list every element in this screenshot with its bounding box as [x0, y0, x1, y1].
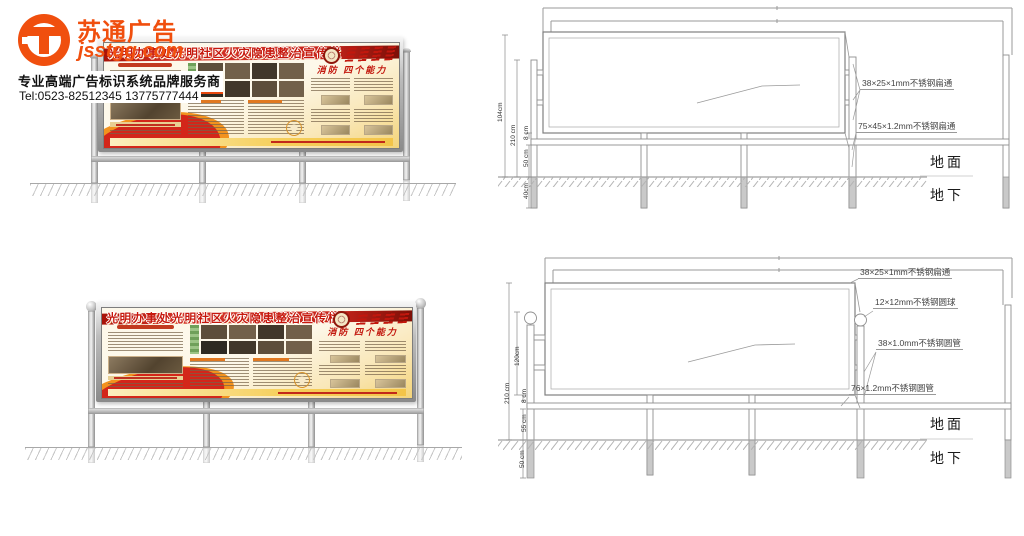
cross-rail-line — [531, 139, 1009, 145]
ground-label: 地面 — [930, 152, 964, 172]
ground-label: 地面 — [930, 414, 964, 434]
callout-leader — [850, 279, 858, 283]
cross-rail — [91, 156, 410, 162]
seal-icon — [333, 311, 350, 328]
design-proof-canvas: 苏通广告 jsstgg.com 专业高端广告标识系统品牌服务商 Tel:0523… — [0, 0, 1024, 536]
stand-leg — [299, 150, 306, 183]
poster-right-column: 消防 四个能力 — [311, 63, 393, 137]
signature-line — [271, 141, 384, 144]
poster-face: 光明办事处光明社区火灾隐患整治宣传栏 — [101, 307, 413, 399]
ability-item — [354, 109, 393, 137]
dim-label: 210 cm — [510, 125, 517, 146]
left-post — [527, 325, 534, 440]
bottom-yellow-strip — [108, 389, 406, 396]
photo-caption — [108, 376, 182, 380]
underground-label: 地下 — [930, 185, 964, 205]
ability-item — [319, 341, 360, 364]
poster-title: 光明办事处光明社区火灾隐患整治宣传栏 — [107, 310, 341, 326]
calligraphy-slogan-icon — [356, 311, 410, 324]
bottom-yellow-strip — [110, 138, 393, 146]
ball-finial — [855, 314, 867, 326]
front-frame-outer — [543, 32, 845, 133]
vertical-green-label — [190, 325, 199, 354]
text-block — [190, 358, 249, 388]
stand-post — [88, 311, 95, 447]
ground-hatch-strip — [498, 177, 927, 187]
far-post — [1005, 305, 1011, 440]
signature-line — [278, 392, 397, 395]
ground-hatch — [25, 447, 462, 460]
poster-middle-column — [190, 325, 312, 388]
ground-hatch-strip — [498, 440, 927, 450]
stand-post — [417, 308, 424, 445]
cross-rail — [88, 408, 424, 414]
dim-label: 120cm — [514, 346, 521, 366]
fire-abilities-title: 消防 四个能力 — [319, 325, 405, 338]
sutong-logo-icon — [16, 12, 72, 68]
ground-hatch — [30, 183, 456, 196]
text-block — [188, 100, 244, 136]
cross-rail-line — [527, 403, 1011, 409]
underground-label: 地下 — [930, 448, 964, 468]
front-frame-outer — [545, 283, 855, 395]
inset-photo — [108, 356, 182, 374]
technical-drawing-bottom — [495, 250, 1024, 536]
text-block — [110, 130, 181, 136]
dim-label: 8 cm — [523, 126, 530, 140]
seal-icon — [323, 47, 340, 64]
dim-label: 210 cm — [504, 383, 511, 404]
calligraphy-slogan-icon — [345, 46, 397, 61]
board-frame: 光明办事处光明社区火灾隐患整治宣传栏 — [96, 302, 416, 402]
ability-item — [311, 78, 350, 106]
material-callout: 38×25×1mm不锈钢扁通 — [858, 268, 952, 279]
material-callout: 38×1.0mm不锈钢圆管 — [876, 339, 963, 350]
fire-abilities-title: 消防 四个能力 — [311, 63, 393, 76]
poster-right-column: 消防 四个能力 — [319, 325, 405, 388]
stand-leg — [199, 150, 206, 183]
material-callout: 12×12mm不锈钢圆球 — [873, 298, 958, 309]
section-header-pill — [118, 63, 172, 67]
photo-grid — [201, 325, 312, 354]
ability-item — [319, 365, 360, 388]
material-callout: 75×45×1.2mm不锈钢扁通 — [856, 122, 957, 133]
dim-line-height — [514, 60, 520, 177]
text-block — [108, 383, 182, 388]
ability-item — [365, 365, 406, 388]
brand-telephone: Tel:0523-82512345 13775777444 — [17, 89, 201, 103]
dim-line-total — [506, 283, 512, 440]
callout-leader — [864, 311, 873, 317]
material-callout: 76×1.2mm不锈钢圆管 — [849, 384, 936, 395]
text-block — [108, 332, 182, 353]
ball-finial — [525, 312, 537, 324]
photo-caption — [110, 122, 181, 127]
ability-item — [354, 78, 393, 106]
dim-label: 50 cm — [519, 450, 526, 468]
dim-label: 50 cm — [523, 149, 530, 167]
brand-domain: jsstgg.com — [78, 40, 184, 63]
ability-item — [311, 109, 350, 137]
ability-item — [365, 341, 406, 364]
dim-label: 40cm — [523, 183, 530, 199]
poster-columns: 消防 四个能力 — [108, 325, 406, 388]
dim-label: 55 cm — [521, 414, 528, 432]
dim-label: 104cm — [497, 102, 504, 122]
dim-label: 8 cm — [521, 389, 528, 403]
material-callout: 38×25×1mm不锈钢扁通 — [860, 79, 954, 90]
poster-left-column — [108, 325, 182, 388]
